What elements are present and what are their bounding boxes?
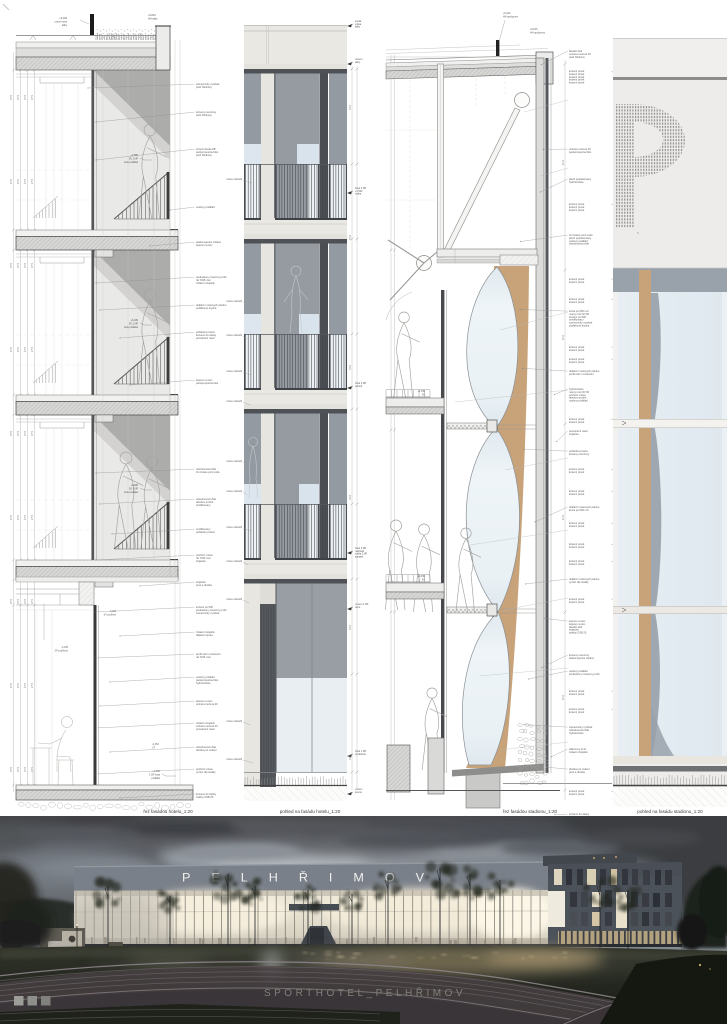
svg-text:2750: 2750: [32, 682, 34, 688]
svg-text:2750: 2750: [11, 682, 13, 688]
svg-text:kotevni prvekkotevni prvek: kotevni prvekkotevni prvek: [569, 345, 585, 352]
svg-text:pohled na fasádu hotelu_1:20: pohled na fasádu hotelu_1:20: [280, 809, 341, 814]
svg-text:kotevni prvekkotevni prvek: kotevni prvekkotevni prvek: [569, 597, 585, 604]
svg-text:kotva zabradli: kotva zabradli: [227, 560, 243, 563]
svg-text:3300: 3300: [350, 754, 352, 760]
svg-text:kotevni prvekkotevni prvek: kotevni prvekkotevni prvek: [569, 357, 585, 364]
svg-text:kotva zabradli: kotva zabradli: [227, 758, 243, 761]
svg-text:2750: 2750: [25, 430, 27, 436]
svg-text:kotva zabradli: kotva zabradli: [227, 490, 243, 493]
svg-text:2750: 2750: [18, 682, 20, 688]
svg-text:+-0,0001.NP cistapodlaha: +-0,0001.NP cistapodlaha: [149, 770, 161, 780]
svg-text:3300: 3300: [350, 494, 352, 500]
svg-text:řez fasádou stadionu_1:20: řez fasádou stadionu_1:20: [503, 809, 558, 814]
svg-text:2750: 2750: [11, 262, 13, 268]
svg-text:2750: 2750: [11, 766, 13, 772]
svg-text:4150: 4150: [563, 694, 565, 700]
svg-text:2750: 2750: [11, 346, 13, 352]
svg-text:2750: 2750: [25, 766, 27, 772]
svg-text:kotva zabradli: kotva zabradli: [227, 178, 243, 181]
svg-text:3300: 3300: [350, 104, 352, 110]
svg-text:kotva zabradli: kotva zabradli: [227, 526, 243, 529]
svg-text:2750: 2750: [18, 94, 20, 100]
svg-text:2750: 2750: [18, 430, 20, 436]
svg-text:3300: 3300: [350, 234, 352, 240]
svg-text:2750: 2750: [11, 178, 13, 184]
svg-text:kotva zabradli: kotva zabradli: [227, 334, 243, 337]
svg-text:2750: 2750: [25, 262, 27, 268]
svg-text:ocelovy podklad: ocelovy podklad: [196, 205, 215, 209]
svg-text:pohledovy betonkotveny nerezov: pohledovy betonkotveny nerezovy: [569, 449, 590, 456]
svg-text:2750: 2750: [25, 346, 27, 352]
svg-text:kotevni prvekkotevni prvek: kotevni prvekkotevni prvek: [569, 467, 585, 474]
svg-text:2750: 2750: [32, 430, 34, 436]
svg-text:2750: 2750: [18, 598, 20, 604]
svg-text:řez fasádou hotelu_1:20: řez fasádou hotelu_1:20: [143, 809, 193, 814]
svg-text:pohledovy betonkotveno do desk: pohledovy betonkotveno do deskypenetracn…: [196, 330, 217, 340]
svg-text:2750: 2750: [25, 178, 27, 184]
svg-text:4150: 4150: [563, 514, 565, 520]
svg-text:2750: 2750: [32, 178, 34, 184]
svg-text:odvodnovaci zlabdrazka pro ved: odvodnovaci zlabdrazka pro vedeni: [196, 745, 217, 752]
svg-text:kotva zabradli: kotva zabradli: [227, 720, 243, 723]
svg-text:pohled na fasádu stadionu_1:20: pohled na fasádu stadionu_1:20: [637, 809, 703, 814]
svg-text:silikonovy tmelizolacni dvojsk: silikonovy tmelizolacni dvojsklo: [569, 747, 588, 754]
svg-text:2750: 2750: [11, 598, 13, 604]
svg-text:3300: 3300: [350, 624, 352, 630]
svg-text:2750: 2750: [32, 598, 34, 604]
svg-text:SPORTHOTEL_PELHŘIMOV: SPORTHOTEL_PELHŘIMOV: [264, 986, 466, 999]
svg-text:2750: 2750: [32, 346, 34, 352]
svg-text:kotva zabradli: kotva zabradli: [227, 370, 243, 373]
svg-text:kotevni prvekkotevni prvek: kotevni prvekkotevni prvek: [569, 789, 585, 796]
svg-text:kotevni prvekkotevni prvek: kotevni prvekkotevni prvek: [569, 489, 585, 496]
svg-text:3300: 3300: [350, 364, 352, 370]
svg-text:izolacni dvojsklodilatacni spa: izolacni dvojsklodilatacni spara: [196, 630, 215, 637]
svg-text:kotevni prvekkotevni prvek: kotevni prvekkotevni prvek: [569, 689, 585, 696]
svg-text:2750: 2750: [18, 766, 20, 772]
svg-text:2750: 2750: [32, 514, 34, 520]
svg-text:2750: 2750: [25, 682, 27, 688]
svg-text:2750: 2750: [32, 94, 34, 100]
svg-text:kotevni prvekkotevni prvek: kotevni prvekkotevni prvek: [569, 417, 585, 424]
svg-text:2750: 2750: [18, 514, 20, 520]
svg-text:kotva zabradli: kotva zabradli: [227, 300, 243, 303]
svg-text:2750: 2750: [18, 262, 20, 268]
svg-text:2750: 2750: [11, 430, 13, 436]
svg-text:kotevni prvekkotevni prvekkote: kotevni prvekkotevni prvekkotevni prvekk…: [569, 69, 585, 85]
svg-text:2750: 2750: [32, 262, 34, 268]
svg-text:2750: 2750: [25, 598, 27, 604]
svg-text:kotevni prvekkotevni prvek: kotevni prvekkotevni prvek: [569, 277, 585, 284]
svg-text:kotva zabradli: kotva zabradli: [227, 400, 243, 403]
svg-text:hotel 1.NPprosklenie: hotel 1.NPprosklenie: [355, 750, 367, 756]
svg-text:4150: 4150: [563, 159, 565, 165]
svg-text:kotevni prvekkotevni prvek: kotevni prvekkotevni prvek: [569, 559, 585, 566]
svg-text:2750: 2750: [18, 346, 20, 352]
svg-text:kotevni prvekkotevni prvek: kotevni prvekkotevni prvek: [569, 707, 585, 714]
svg-text:2750: 2750: [18, 178, 20, 184]
svg-text:kotevni prvekkotevni prvek: kotevni prvekkotevni prvek: [569, 521, 585, 528]
svg-text:2750: 2750: [11, 514, 13, 520]
svg-text:vetrana mezera 40paropropustna: vetrana mezera 40paropropustna folie: [569, 147, 592, 154]
svg-text:4150: 4150: [563, 334, 565, 340]
svg-text:kotevni prvekkotevni prvek: kotevni prvekkotevni prvek: [569, 542, 585, 549]
svg-text:2750: 2750: [11, 94, 13, 100]
svg-text:kotva zabradli: kotva zabradli: [227, 598, 243, 601]
svg-text:kotva zabradli: kotva zabradli: [227, 460, 243, 463]
svg-text:2750: 2750: [25, 94, 27, 100]
svg-text:kotevni prvekkotevni prvek: kotevni prvekkotevni prvek: [569, 297, 585, 304]
svg-text:kotevni prvekkotevni prvekkote: kotevni prvekkotevni prvekkotevni prvek: [569, 202, 585, 212]
svg-text:2750: 2750: [25, 514, 27, 520]
